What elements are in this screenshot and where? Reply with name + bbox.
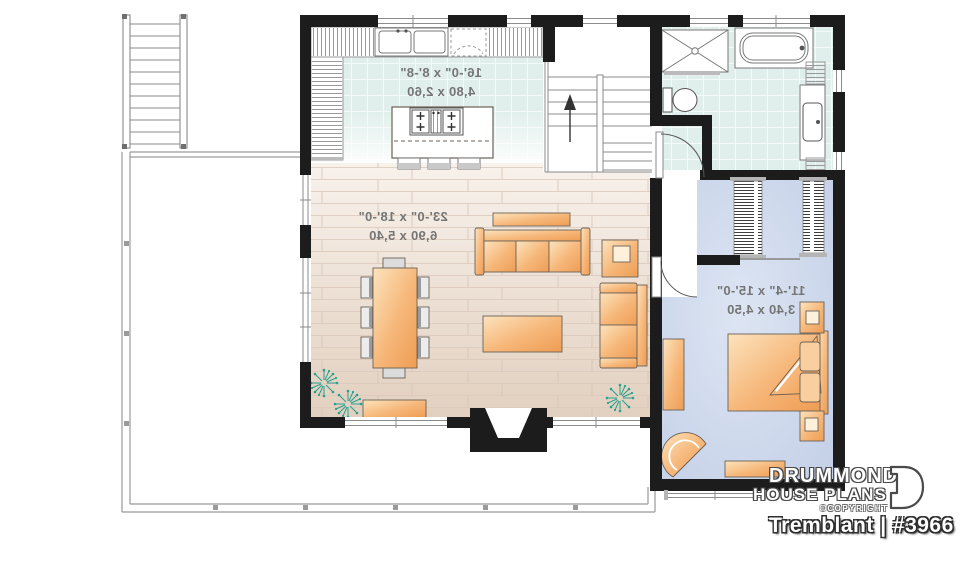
loveseat	[600, 283, 647, 368]
bedroom-dimensions-imperial: 11'-4" x 15'-0"	[681, 282, 841, 301]
pillow	[800, 373, 820, 402]
living-dimensions-metric: 6,90 x 5,40	[323, 227, 483, 246]
coffee-table	[483, 316, 562, 352]
copyright-text: ©COPYRIGHT	[820, 505, 888, 513]
nightstand-with-lamp	[800, 411, 824, 441]
kitchen-dimensions-metric: 4,80 x 2,60	[361, 83, 521, 102]
fireplace	[470, 408, 547, 452]
exterior-stairs	[122, 14, 187, 149]
living-bench	[363, 400, 426, 418]
console-table	[493, 213, 570, 226]
bed	[728, 331, 828, 414]
kitchen-island	[392, 107, 493, 169]
bedroom-dimensions: 11'-4" x 15'-0" 3,40 x 4,50	[681, 282, 841, 320]
drummond-logo-mark-icon	[884, 462, 926, 514]
brand-name: DRUMMOND	[769, 466, 898, 486]
toilet	[663, 88, 697, 112]
living-dimensions-imperial: 23'-0" x 18'-0"	[323, 208, 483, 227]
bathtub	[735, 28, 813, 68]
floor-plan-page: 16'-0" x 8'-8" 4,80 x 2,60 23'-0" x 18'-…	[0, 0, 960, 569]
shower	[662, 30, 728, 75]
dresser	[663, 339, 684, 410]
stairs-up-arrow-icon	[564, 94, 576, 142]
kitchen-counter-left	[311, 57, 343, 160]
cooktop	[410, 108, 463, 135]
bedroom-dimensions-metric: 3,40 x 4,50	[681, 301, 841, 320]
kitchen-dimensions: 16'-0" x 8'-8" 4,80 x 2,60	[361, 64, 521, 102]
interior-stairs	[545, 62, 652, 172]
plan-title: Tremblant | #3966	[769, 515, 954, 536]
kitchen-sink	[375, 28, 448, 56]
living-dining-dimensions: 23'-0" x 18'-0" 6,90 x 5,40	[323, 208, 483, 246]
brand-subname: HOUSE PLANS	[753, 486, 887, 503]
pillow	[800, 342, 820, 371]
kitchen-dimensions-imperial: 16'-0" x 8'-8"	[361, 64, 521, 83]
island-stools	[398, 158, 480, 169]
end-table-with-lamp	[602, 240, 638, 277]
